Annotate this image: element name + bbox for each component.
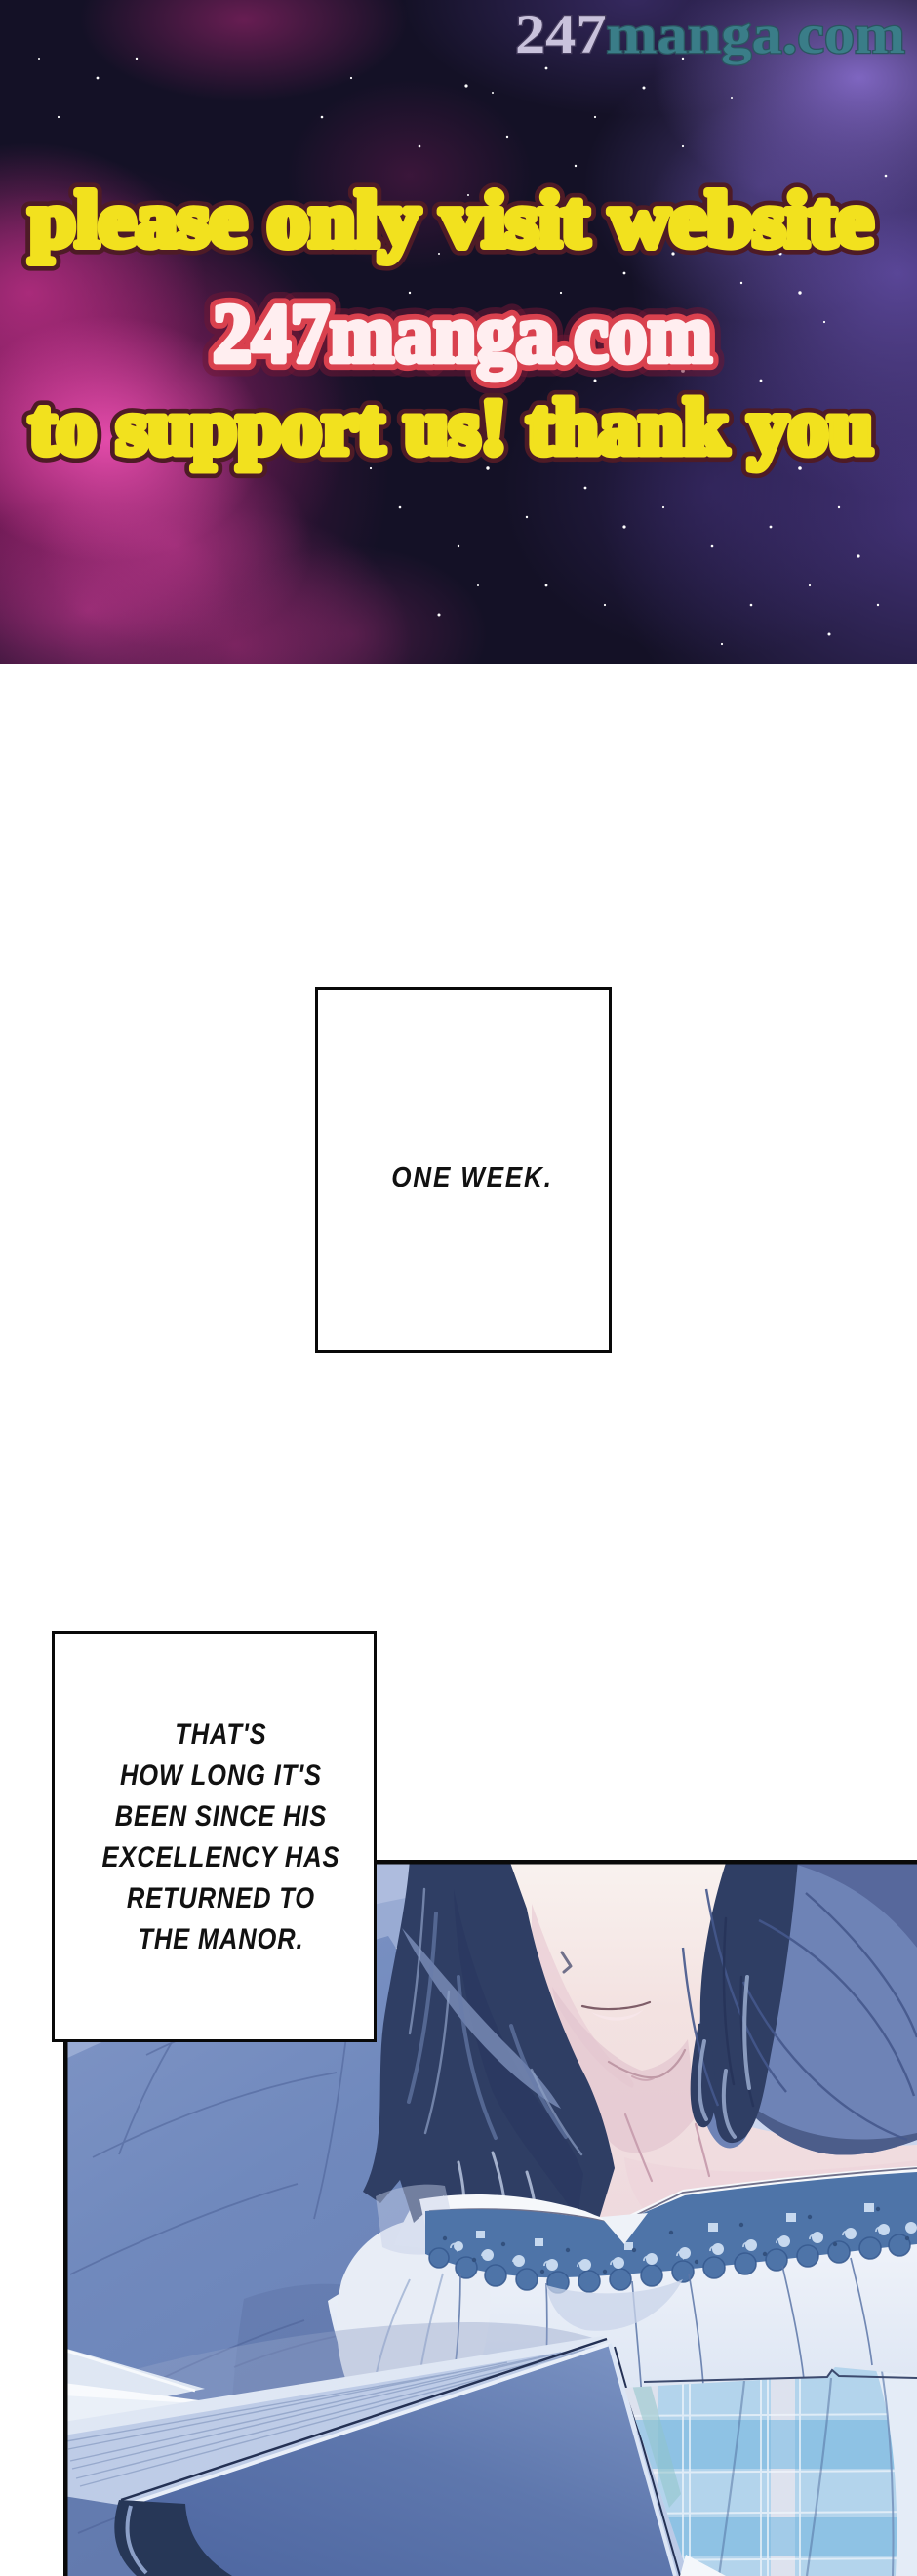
- svg-text:to support us! thank you: to support us! thank you: [29, 384, 873, 471]
- svg-text:247manga.com: 247manga.com: [213, 288, 712, 381]
- svg-text:247manga.com: 247manga.com: [515, 4, 905, 65]
- svg-text:please only visit website: please only visit website: [29, 177, 873, 263]
